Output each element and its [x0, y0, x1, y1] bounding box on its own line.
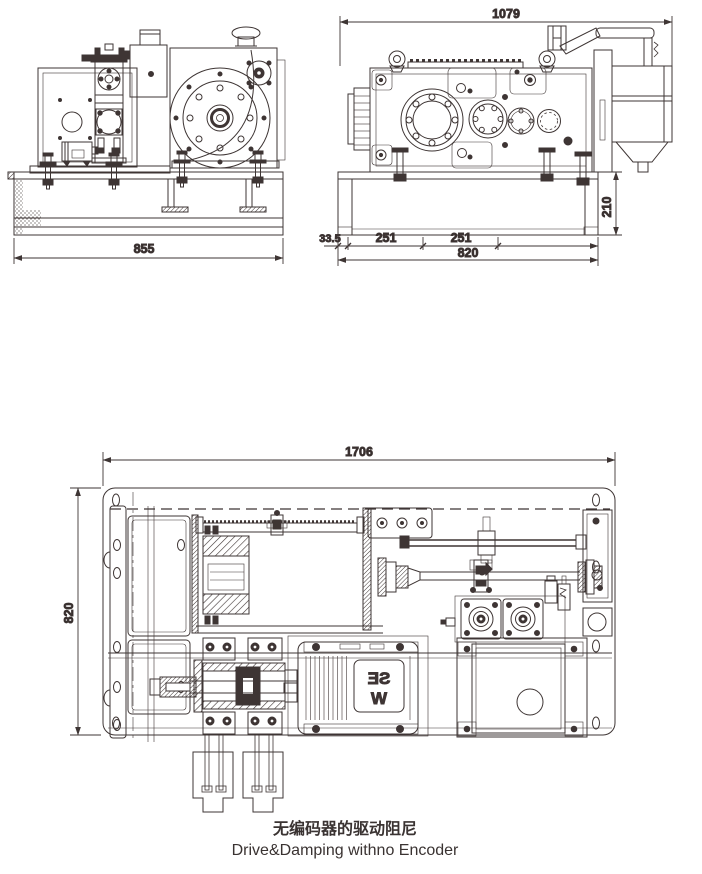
output-coupling [203, 526, 249, 624]
drive-shaft [378, 558, 602, 596]
base-frame-side [338, 172, 598, 235]
dim-label-820-side: 820 [458, 246, 479, 260]
dim-label-855: 855 [134, 242, 155, 256]
base-frame-plan [103, 488, 615, 740]
dim-label-33-5: 33.5 [319, 233, 340, 245]
dim-chain-bottom: 33.5 251 251 820 [319, 231, 598, 266]
side-view [338, 26, 672, 235]
front-view [8, 27, 285, 235]
limit-switch [62, 142, 98, 166]
sew-logo-bottom: W [370, 689, 387, 708]
dim-label-820-plan: 820 [62, 603, 76, 624]
dim-label-1706: 1706 [345, 445, 373, 459]
hydraulic-pumps [441, 576, 570, 642]
drawing-caption: 无编码器的驱动阻尼 Drive&Damping withno Encoder [0, 820, 690, 861]
mounting-brackets [193, 734, 283, 812]
technical-drawing: SE W [0, 0, 702, 874]
channel-support [162, 179, 266, 212]
gearbox-side [348, 51, 592, 172]
dim-label-251-a: 251 [376, 231, 397, 245]
sew-logo-top: SE [368, 669, 391, 688]
dim-210: 210 [598, 172, 622, 235]
dim-label-251-b: 251 [451, 231, 472, 245]
valve-block [122, 30, 167, 97]
tie-rods [400, 517, 586, 575]
dim-820-plan: 820 [62, 488, 101, 735]
dim-1706: 1706 [103, 445, 615, 486]
brake-column [82, 44, 127, 163]
drive-motor-side [548, 26, 672, 172]
dim-label-1079: 1079 [492, 7, 520, 21]
gear-unit-plan [104, 506, 190, 742]
sew-motor: SE W [284, 636, 428, 736]
plan-view: SE W [103, 488, 615, 812]
sew-logo: SE W [354, 660, 404, 712]
caption-en: Drive&Damping withno Encoder [0, 840, 690, 861]
dim-855: 855 [14, 238, 283, 264]
gearbox-front [170, 27, 285, 168]
rack-assembly [196, 511, 364, 536]
caption-zh: 无编码器的驱动阻尼 [0, 820, 690, 840]
dim-label-210: 210 [600, 197, 614, 218]
brake-lever [548, 26, 658, 66]
damping-coupling [150, 638, 298, 734]
input-bearing [247, 61, 271, 85]
drawing-sheet: SE W [0, 0, 702, 874]
